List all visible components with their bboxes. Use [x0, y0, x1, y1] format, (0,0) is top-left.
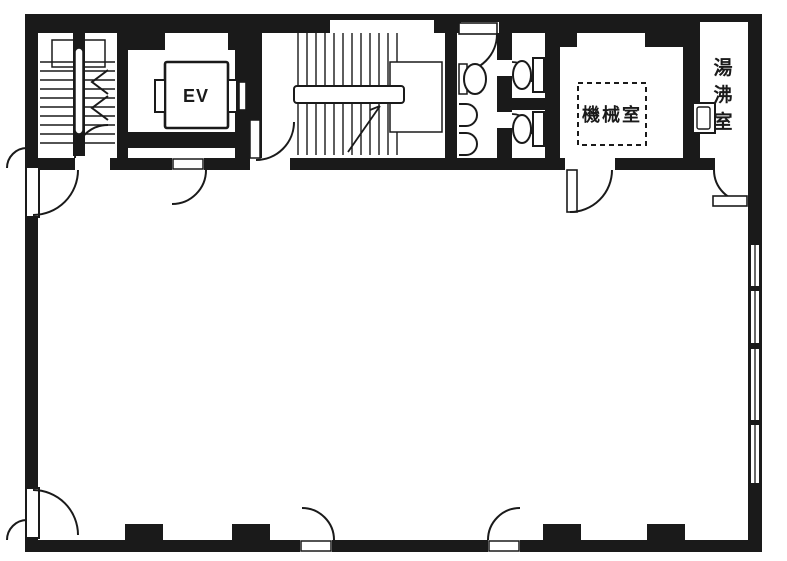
washroom-door-leaf: [459, 23, 497, 34]
kitchenette-label-char-1: 湯: [713, 57, 732, 79]
ev-jamb-left: [117, 33, 165, 50]
outer-wall-bottom: [25, 540, 762, 552]
kitchenette-label-char-3: 室: [713, 110, 732, 133]
stair-central-handrail: [294, 86, 404, 103]
machine-room-door-leaf: [567, 170, 577, 212]
wall-toilet-inner: [497, 14, 512, 170]
kitchenette-label-char-2: 沸: [713, 83, 732, 106]
top-wall-window-slot: [330, 20, 434, 33]
ev-jamb-right: [228, 33, 262, 50]
bottom-door-a-leaf: [301, 541, 331, 551]
stair-west-handrail: [75, 48, 83, 134]
entry-door-top-left-swing-out: [7, 148, 27, 168]
ribbon-window: [748, 240, 762, 488]
stall-door-gap-1: [497, 60, 512, 76]
window-mullion: [748, 240, 762, 245]
toilet-bowl-2: [513, 115, 531, 143]
urinal-1: [459, 104, 477, 126]
column-bump-3: [543, 524, 581, 540]
toilet-tank-2: [533, 112, 544, 146]
elevator-bumper-right-outer: [239, 82, 246, 110]
elevator-bumper-right: [228, 80, 237, 112]
entry-door-bottom-left-swing-out: [7, 520, 27, 540]
stair-central-door-leaf: [250, 120, 260, 158]
entry-door-bottom-left-leaf: [26, 488, 39, 538]
floor-plan-svg: EV: [0, 0, 787, 561]
elevator-label: EV: [183, 86, 209, 106]
column-bump-4: [647, 524, 685, 540]
machine-corner-right: [645, 33, 683, 47]
main-room-interior: [38, 170, 748, 540]
bottom-door-b-leaf: [489, 541, 519, 551]
window-mullion: [748, 420, 762, 425]
column-bump-1: [125, 524, 163, 540]
elevator-bumper-left: [155, 80, 165, 112]
door-gap-stairwell-west: [75, 158, 110, 170]
door-gap-kitchenette: [715, 158, 748, 170]
toilet-tank-1: [533, 58, 544, 92]
column-bump-2: [232, 524, 270, 540]
machine-room-notch: [577, 33, 645, 47]
wc-stall-divider: [512, 98, 545, 110]
outer-wall-left: [25, 14, 38, 552]
wall-machine-kitchenette: [683, 14, 700, 170]
wall-stair2-toilet: [445, 14, 457, 170]
machine-corner-left: [557, 33, 578, 47]
window-mullion: [748, 286, 762, 291]
stall-door-gap-2: [497, 112, 512, 128]
kitchenette-door-leaf: [713, 196, 747, 206]
machine-room-label: 機械室: [582, 104, 642, 125]
door-gap-machine-room: [565, 158, 615, 170]
window-mullion: [748, 343, 762, 349]
washroom-sink-basin: [464, 64, 486, 94]
elevator-shaft-wall: [128, 132, 235, 148]
toilet-bowl-1: [513, 61, 531, 89]
entry-door-top-left-leaf: [26, 167, 39, 217]
floor-plan-canvas: EV: [0, 0, 787, 561]
corridor-wall: [38, 158, 748, 170]
elevator-hall-door-leaf: [173, 159, 203, 169]
urinal-2: [459, 133, 477, 155]
window-mullion: [748, 483, 762, 488]
